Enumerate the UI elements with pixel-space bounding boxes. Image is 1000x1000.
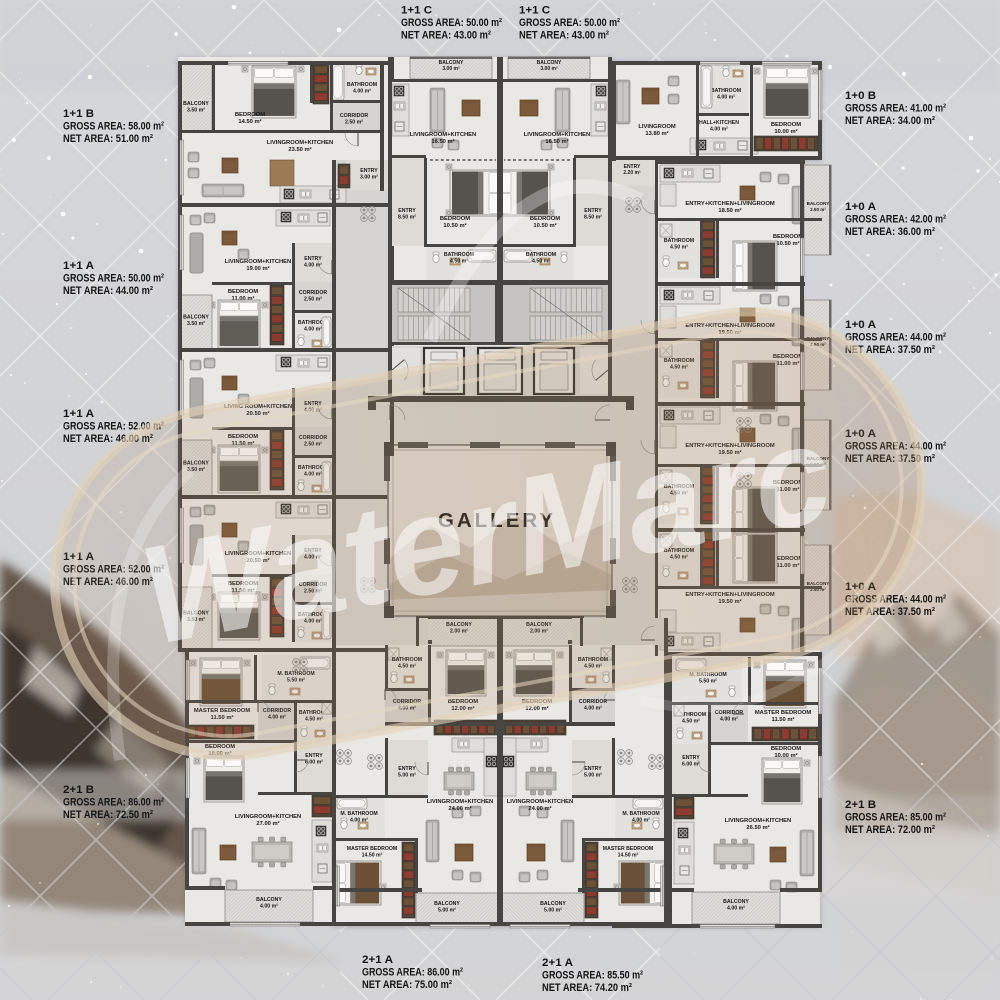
svg-text:BEDROOM10.00 m²: BEDROOM10.00 m² (771, 746, 801, 759)
svg-text:ENTRY3.00 m²: ENTRY3.00 m² (360, 168, 378, 180)
svg-text:ENTRY8.50 m²: ENTRY8.50 m² (398, 208, 416, 220)
svg-text:BEDROOM14.50 m²: BEDROOM14.50 m² (235, 112, 265, 125)
svg-text:ENTRY5.00 m²: ENTRY5.00 m² (584, 766, 602, 778)
svg-text:ENTRY5.00 m²: ENTRY5.00 m² (398, 766, 416, 778)
svg-text:ENTRY2.20 m²: ENTRY2.20 m² (623, 164, 641, 176)
svg-text:BEDROOM10.50 m²: BEDROOM10.50 m² (440, 216, 470, 229)
svg-text:ENTRY6.00 m²: ENTRY6.00 m² (682, 755, 700, 767)
svg-text:BEDROOM10.50 m²: BEDROOM10.50 m² (773, 234, 803, 247)
svg-text:BEDROOM10.50 m²: BEDROOM10.50 m² (530, 216, 560, 229)
svg-text:ENTRY8.50 m²: ENTRY8.50 m² (584, 208, 602, 220)
svg-text:BEDROOM10.00 m²: BEDROOM10.00 m² (771, 122, 801, 135)
